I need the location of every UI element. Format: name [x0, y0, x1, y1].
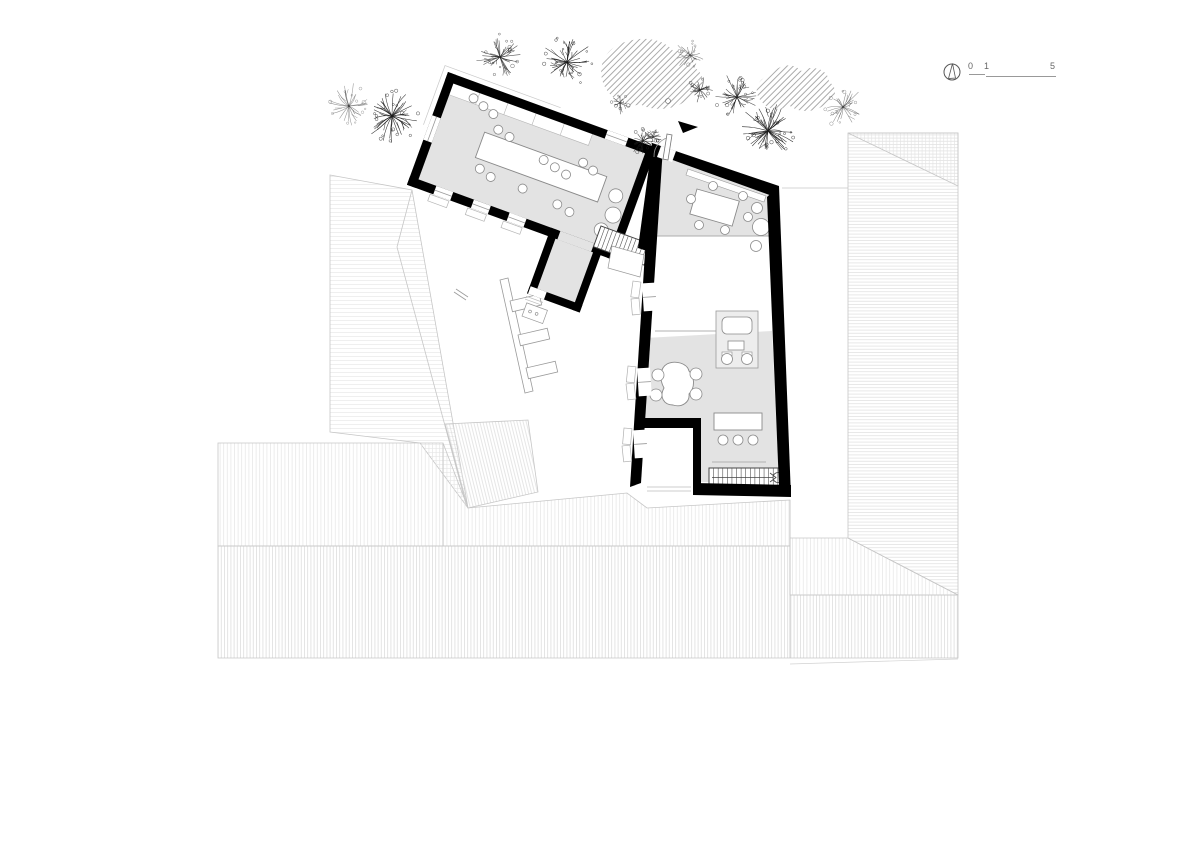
tree [476, 33, 520, 76]
floor-plan-canvas [0, 0, 1189, 841]
entrance-arrow [678, 121, 698, 133]
shutter [631, 281, 641, 298]
roof-edge-line [790, 659, 958, 664]
roof-strip-upper-left [218, 443, 443, 546]
shrub-hatch-2 [757, 65, 835, 111]
tree [371, 89, 419, 143]
scale-label-1: 1 [984, 62, 989, 71]
tree [742, 104, 795, 150]
counter-table [714, 413, 762, 430]
curved-desk [661, 362, 694, 406]
shrub-hatch-1 [601, 39, 703, 109]
roof-right-tall [848, 133, 958, 595]
plant-pot [752, 203, 763, 214]
shutter [626, 383, 636, 400]
wc-bowl [742, 354, 753, 365]
window-west-2 [637, 368, 652, 397]
shutter [623, 428, 632, 445]
notch-east-wall [693, 418, 701, 495]
wc-bowl [722, 354, 733, 365]
plant-pot [753, 219, 770, 236]
shutter [622, 445, 632, 462]
tree [646, 129, 662, 142]
tree [715, 76, 756, 116]
sink [728, 341, 744, 350]
outdoor-table [522, 303, 547, 324]
tree [542, 37, 592, 83]
plant-pot [751, 241, 762, 252]
tree [329, 83, 368, 125]
scale-bar-segment-long [986, 76, 1056, 77]
shutter [626, 366, 636, 383]
right-wing-south-wall [693, 483, 791, 497]
north-arrow-icon [949, 64, 956, 79]
entry-step-line [454, 292, 466, 300]
picnic-table [518, 328, 550, 345]
floor-plan: 0 1 5 [0, 0, 1189, 841]
window-west-3 [633, 430, 648, 459]
entry-step-line [456, 289, 468, 297]
shutter [631, 298, 640, 315]
scale-bar-segment-short [969, 74, 985, 75]
notch-north-wall [638, 418, 701, 428]
scale-label-5: 5 [1050, 62, 1055, 71]
stool [718, 435, 758, 445]
picnic-table [526, 361, 558, 378]
window-west-1 [642, 283, 657, 312]
scale-label-0: 0 [968, 62, 973, 71]
basin [722, 317, 752, 334]
